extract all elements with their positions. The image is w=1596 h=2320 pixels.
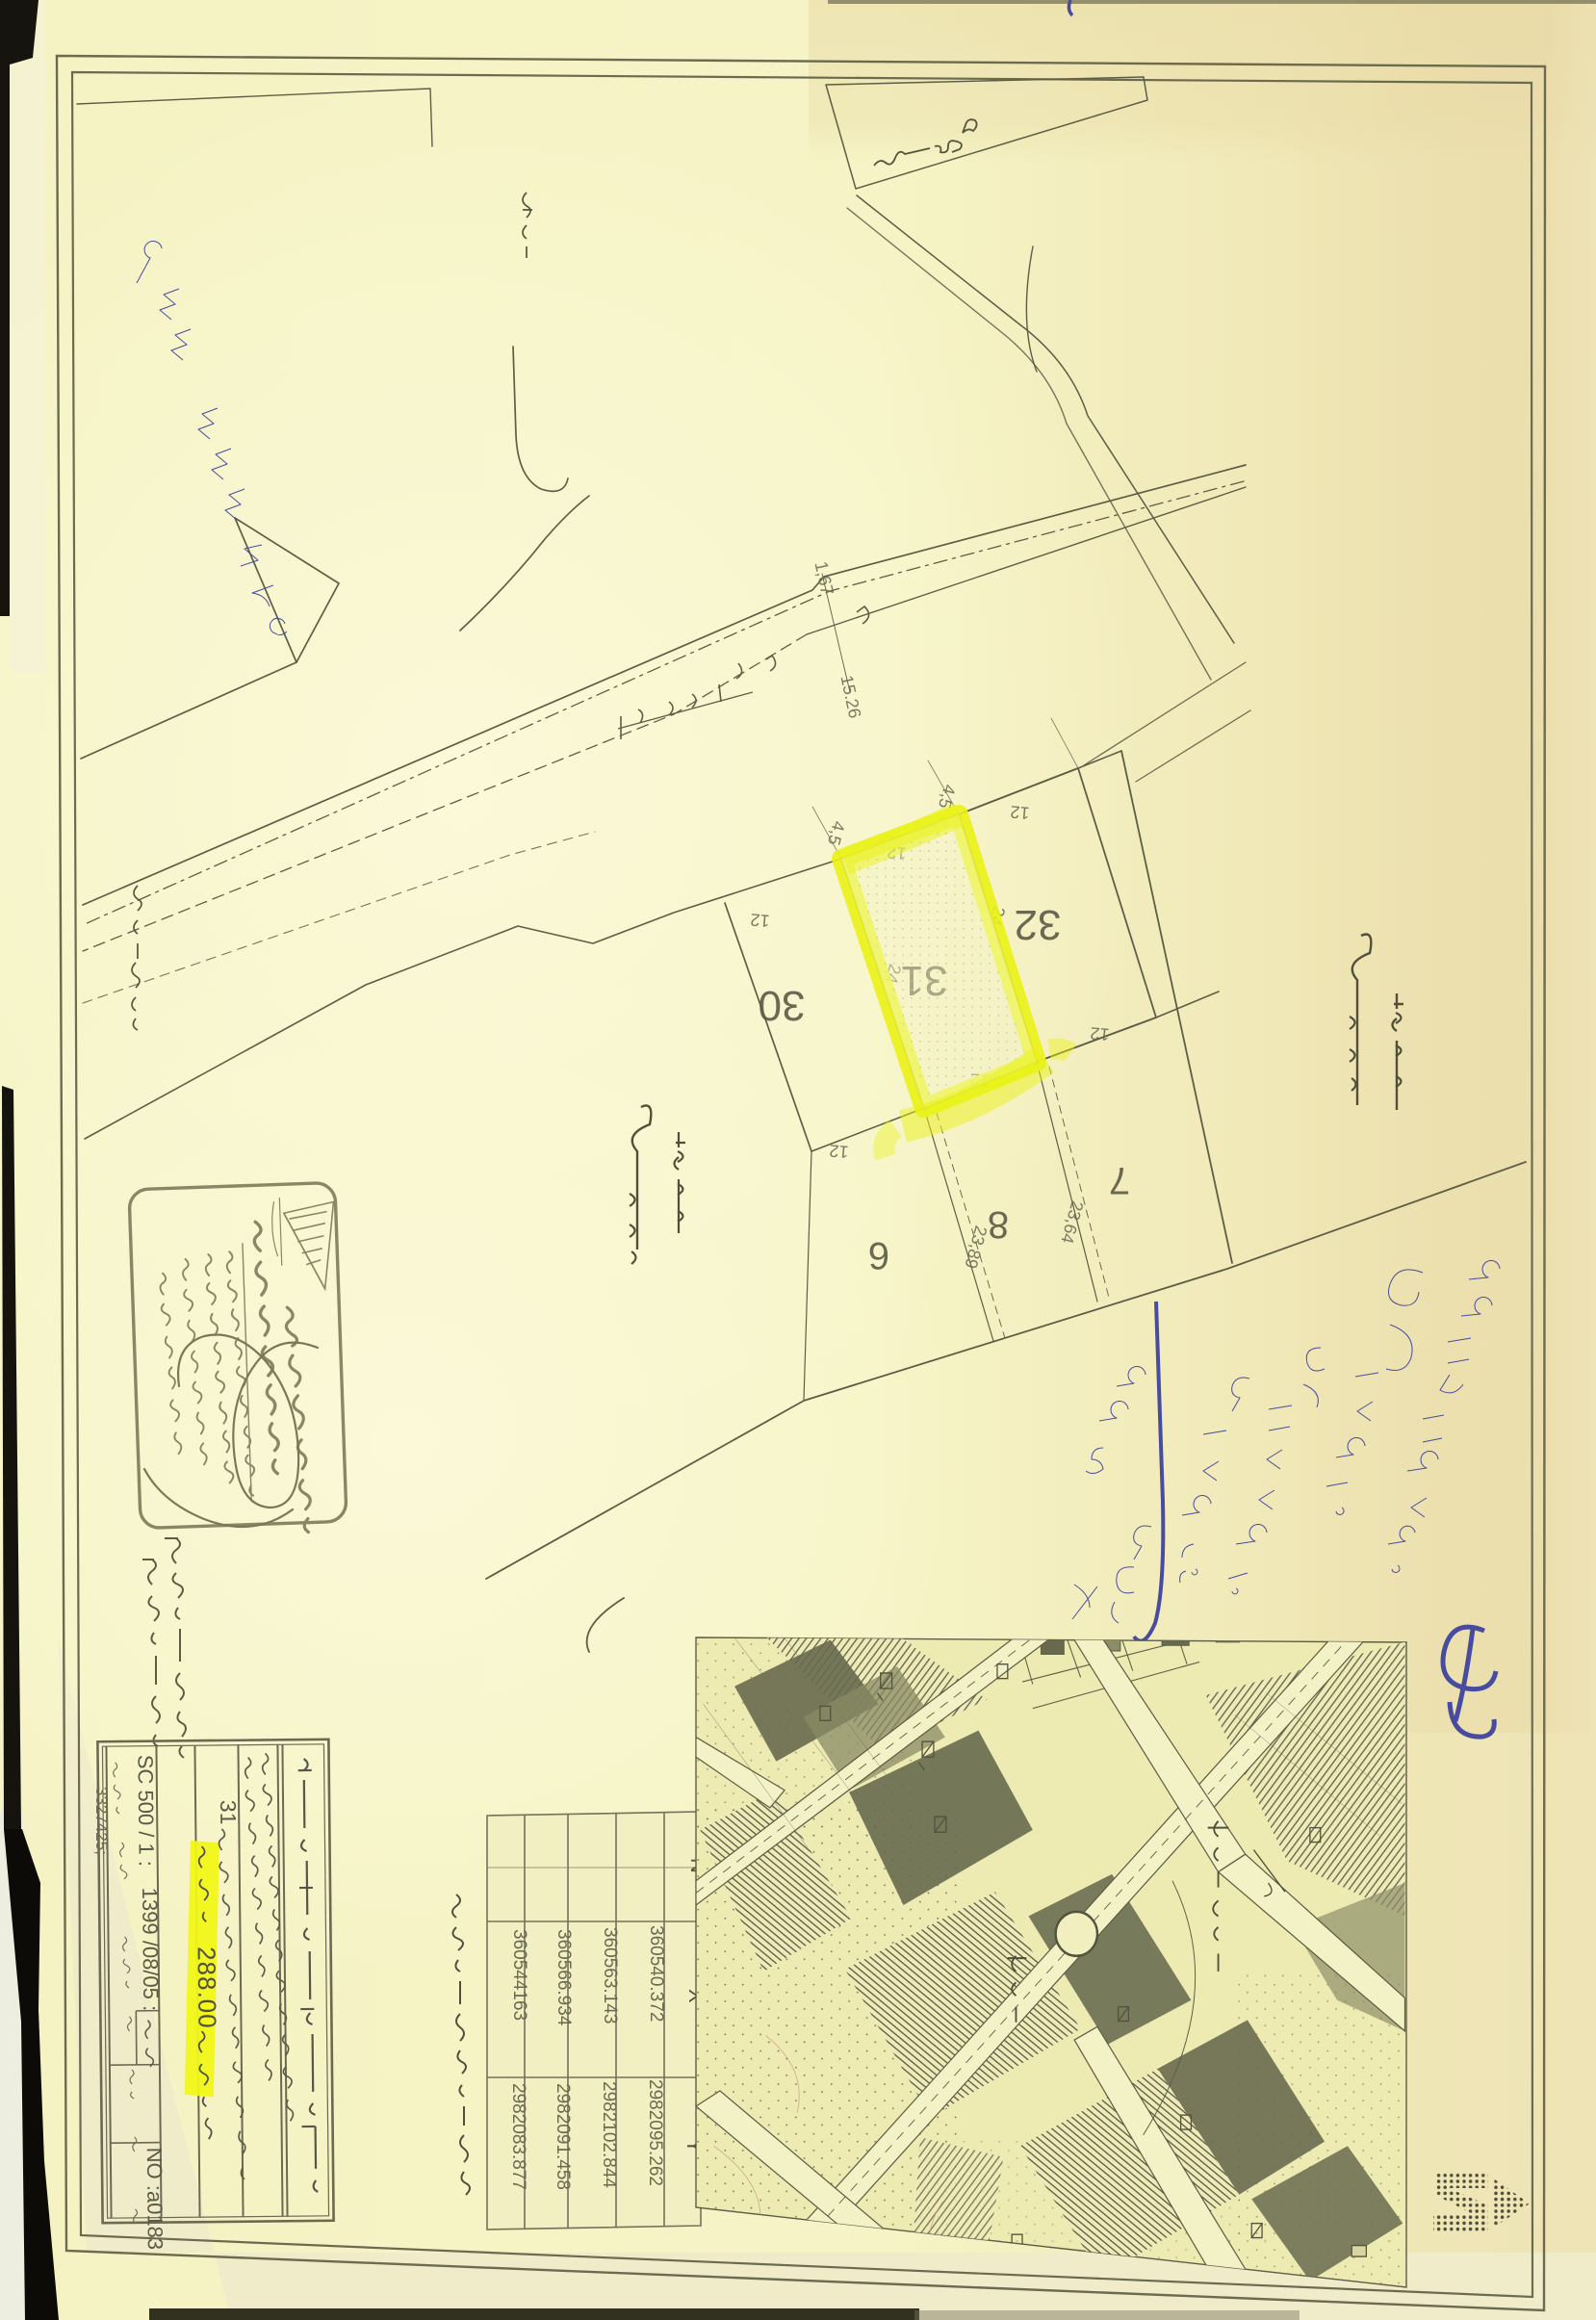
svg-text:7: 7 (1109, 1159, 1130, 1201)
svg-text:360566.934: 360566.934 (553, 1929, 574, 2026)
svg-text:SC 500 / 1 :: SC 500 / 1 : (134, 1755, 159, 1867)
svg-text:30: 30 (759, 982, 806, 1029)
svg-text:32: 32 (1015, 901, 1062, 948)
svg-text:3327425;: 3327425; (92, 1787, 111, 1855)
svg-text:2982083.877: 2982083.877 (508, 2083, 528, 2190)
svg-text:8: 8 (988, 1203, 1009, 1246)
svg-text:1399 /08/05 :: 1399 /08/05 : (138, 1888, 163, 2012)
svg-text:NO :a0183: NO :a0183 (142, 2148, 167, 2251)
svg-text:288.00: 288.00 (193, 1946, 222, 2029)
svg-text:12: 12 (1090, 1023, 1111, 1044)
svg-text:2982102.844: 2982102.844 (599, 2081, 619, 2188)
svg-text:12: 12 (829, 1141, 850, 1162)
svg-text:360544163: 360544163 (509, 1929, 529, 2021)
svg-text:2982095.262: 2982095.262 (645, 2079, 665, 2186)
svg-text:31: 31 (216, 1800, 241, 1825)
svg-text:6: 6 (868, 1234, 889, 1276)
svg-text:2982091.458: 2982091.458 (553, 2083, 573, 2190)
svg-text:12: 12 (750, 910, 771, 931)
svg-text:12: 12 (1010, 802, 1031, 823)
svg-text:360563.143: 360563.143 (600, 1927, 620, 2024)
svg-text:360540.372: 360540.372 (646, 1925, 666, 2022)
